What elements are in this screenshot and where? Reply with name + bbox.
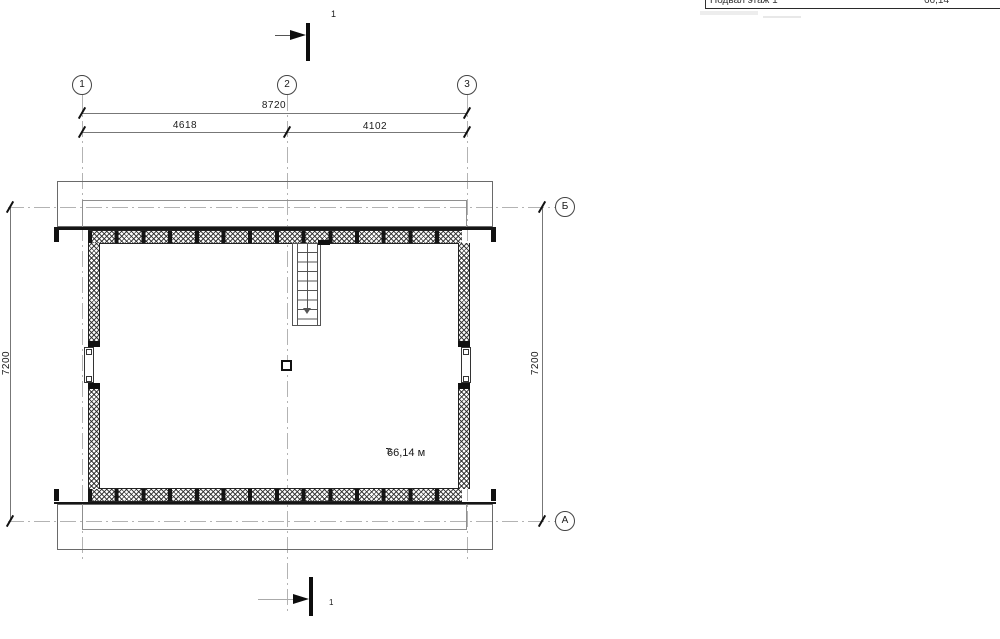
dim-label-right-span: 4102 [345,121,405,133]
dim-line-split-width [82,132,467,133]
room-area-sup: 2 [387,447,391,456]
section-arrow-top-icon [290,30,306,40]
dim-line-height-right [542,207,543,521]
left-window-mullion-top [86,349,92,355]
faint-print-artifact [763,16,801,18]
title-block-table: Подвал этаж 1 66,14 [705,0,1000,9]
section-bar-bottom [309,577,313,616]
stair-direction-line [307,244,308,310]
right-window-mullion-bottom [463,376,469,382]
dim-label-total-width: 8720 [244,100,304,112]
top-eaves-inner-line [82,200,467,227]
floor-plan-canvas: 66,14 м2 8720 4618 4102 7200 7200 1 2 3 … [0,0,1000,639]
title-block-cell-left: Подвал этаж 1 [710,0,778,6]
faint-print-artifact [700,11,758,15]
left-window-mullion-bottom [86,376,92,382]
dim-line-total-width [82,113,467,114]
room-area-value: 66,14 м [387,447,425,459]
axis-line-1 [82,95,83,560]
left-window-bottom-cap [88,383,100,389]
room-area-label: 66,14 м2 [386,447,388,449]
dim-label-left-span: 4618 [155,120,215,132]
grid-bubble-2: 2 [277,75,297,95]
grid-bubble-3: 3 [457,75,477,95]
section-label-bottom: 1 [329,598,333,607]
column-marker [281,360,292,371]
top-eaves-right-tab [491,230,496,242]
section-bar-top [306,23,310,61]
stair-down-arrow-icon [303,308,311,314]
bottom-eaves-inner-line [82,504,467,530]
top-wall [88,230,462,244]
dim-label-height-left: 7200 [1,333,13,393]
stair-lintel [318,240,330,245]
section-arrow-bottom-icon [293,594,309,604]
bottom-eaves-right-tab [491,489,496,501]
dim-label-height-right: 7200 [530,333,542,393]
title-block-cell-right: 66,14 [924,0,949,6]
grid-bubble-a: А [555,511,575,531]
section-line-bottom [258,599,298,600]
section-label-top: 1 [331,9,336,19]
bottom-eaves-left-tab [54,489,59,501]
staircase [292,243,321,326]
right-window-mullion-top [463,349,469,355]
top-eaves-left-tab [54,230,59,242]
grid-bubble-1: 1 [72,75,92,95]
grid-bubble-b: Б [555,197,575,217]
right-window-bottom-cap [458,383,470,389]
bottom-wall [88,488,462,502]
